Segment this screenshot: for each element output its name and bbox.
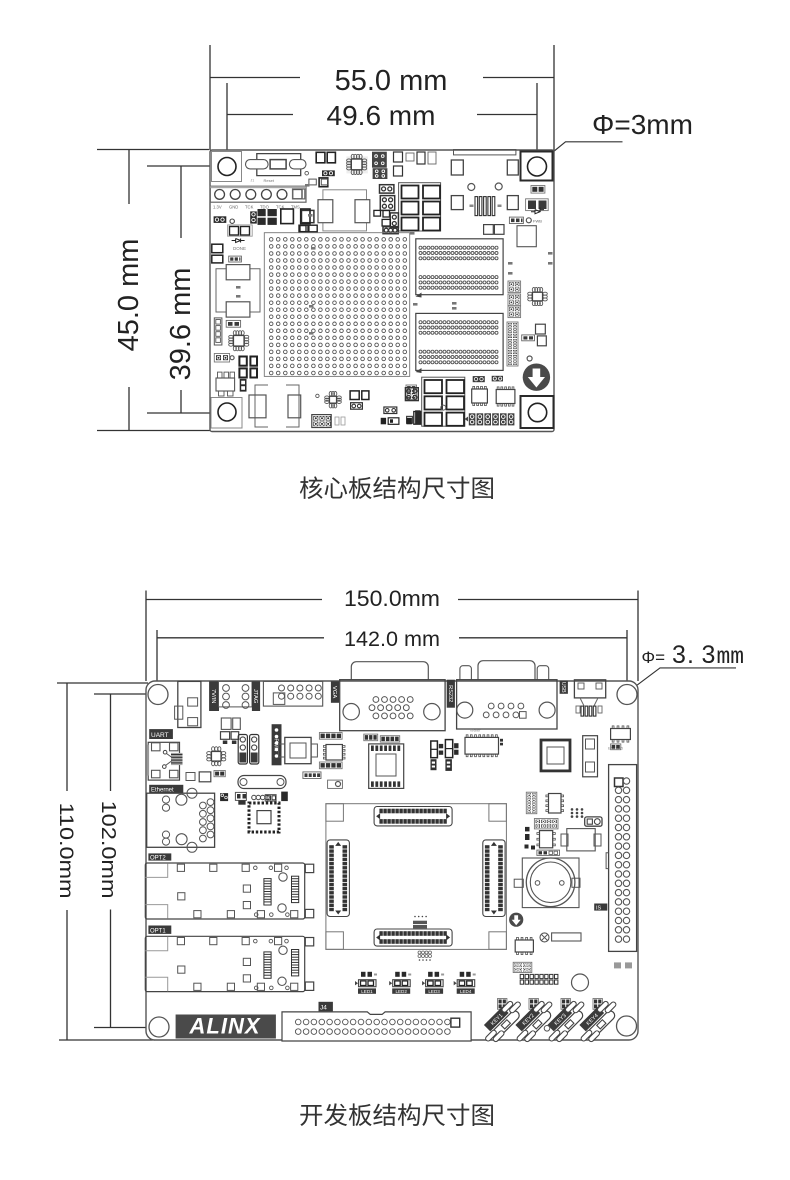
svg-text:JTAG: JTAG [252, 689, 258, 704]
svg-text:55.0 mm: 55.0 mm [335, 65, 448, 97]
svg-text:39.6 mm: 39.6 mm [165, 268, 197, 381]
svg-text:1.3V: 1.3V [213, 205, 222, 210]
svg-text:102.0mm: 102.0mm [97, 801, 119, 899]
svg-text:LED1: LED1 [361, 989, 373, 994]
svg-text:GND: GND [229, 205, 238, 210]
svg-text:USB: USB [560, 682, 566, 693]
svg-text:DONE: DONE [233, 246, 246, 251]
svg-text:J1: J1 [251, 179, 255, 183]
svg-text:3: 3 [702, 641, 716, 669]
svg-text:J4: J4 [320, 1005, 327, 1012]
svg-text:PWR: PWR [273, 738, 279, 751]
svg-text:IS: IS [596, 906, 602, 912]
svg-text:Reset: Reset [264, 178, 275, 183]
svg-text:.: . [687, 641, 694, 669]
svg-text:FWB: FWB [533, 219, 542, 224]
svg-text:45.0 mm: 45.0 mm [113, 239, 145, 352]
svg-text:ALINX: ALINX [189, 1014, 261, 1039]
svg-text:3: 3 [672, 641, 686, 669]
svg-text:LED4: LED4 [460, 989, 472, 994]
svg-text:mm: mm [717, 644, 745, 670]
svg-text:LED3: LED3 [428, 989, 440, 994]
svg-text:150.0mm: 150.0mm [344, 586, 440, 611]
svg-text:110.0mm: 110.0mm [55, 803, 77, 899]
svg-text:OPT1: OPT1 [150, 929, 166, 935]
svg-text:TCK: TCK [245, 205, 254, 210]
svg-text:Wafer: Wafer [470, 728, 481, 733]
svg-text:Φ=: Φ= [642, 648, 666, 667]
svg-text:49.6 mm: 49.6 mm [327, 100, 436, 131]
svg-text:RS232: RS232 [447, 685, 453, 702]
svg-text:7V/IN: 7V/IN [210, 689, 216, 704]
svg-text:Φ=3mm: Φ=3mm [592, 109, 693, 140]
svg-text:142.0 mm: 142.0 mm [344, 627, 440, 651]
svg-text:LED2: LED2 [395, 989, 407, 994]
svg-text:UART: UART [151, 732, 169, 739]
svg-text:OPT2: OPT2 [150, 856, 166, 862]
svg-text:TDO: TDO [260, 205, 270, 210]
svg-text:VGA: VGA [331, 686, 337, 698]
